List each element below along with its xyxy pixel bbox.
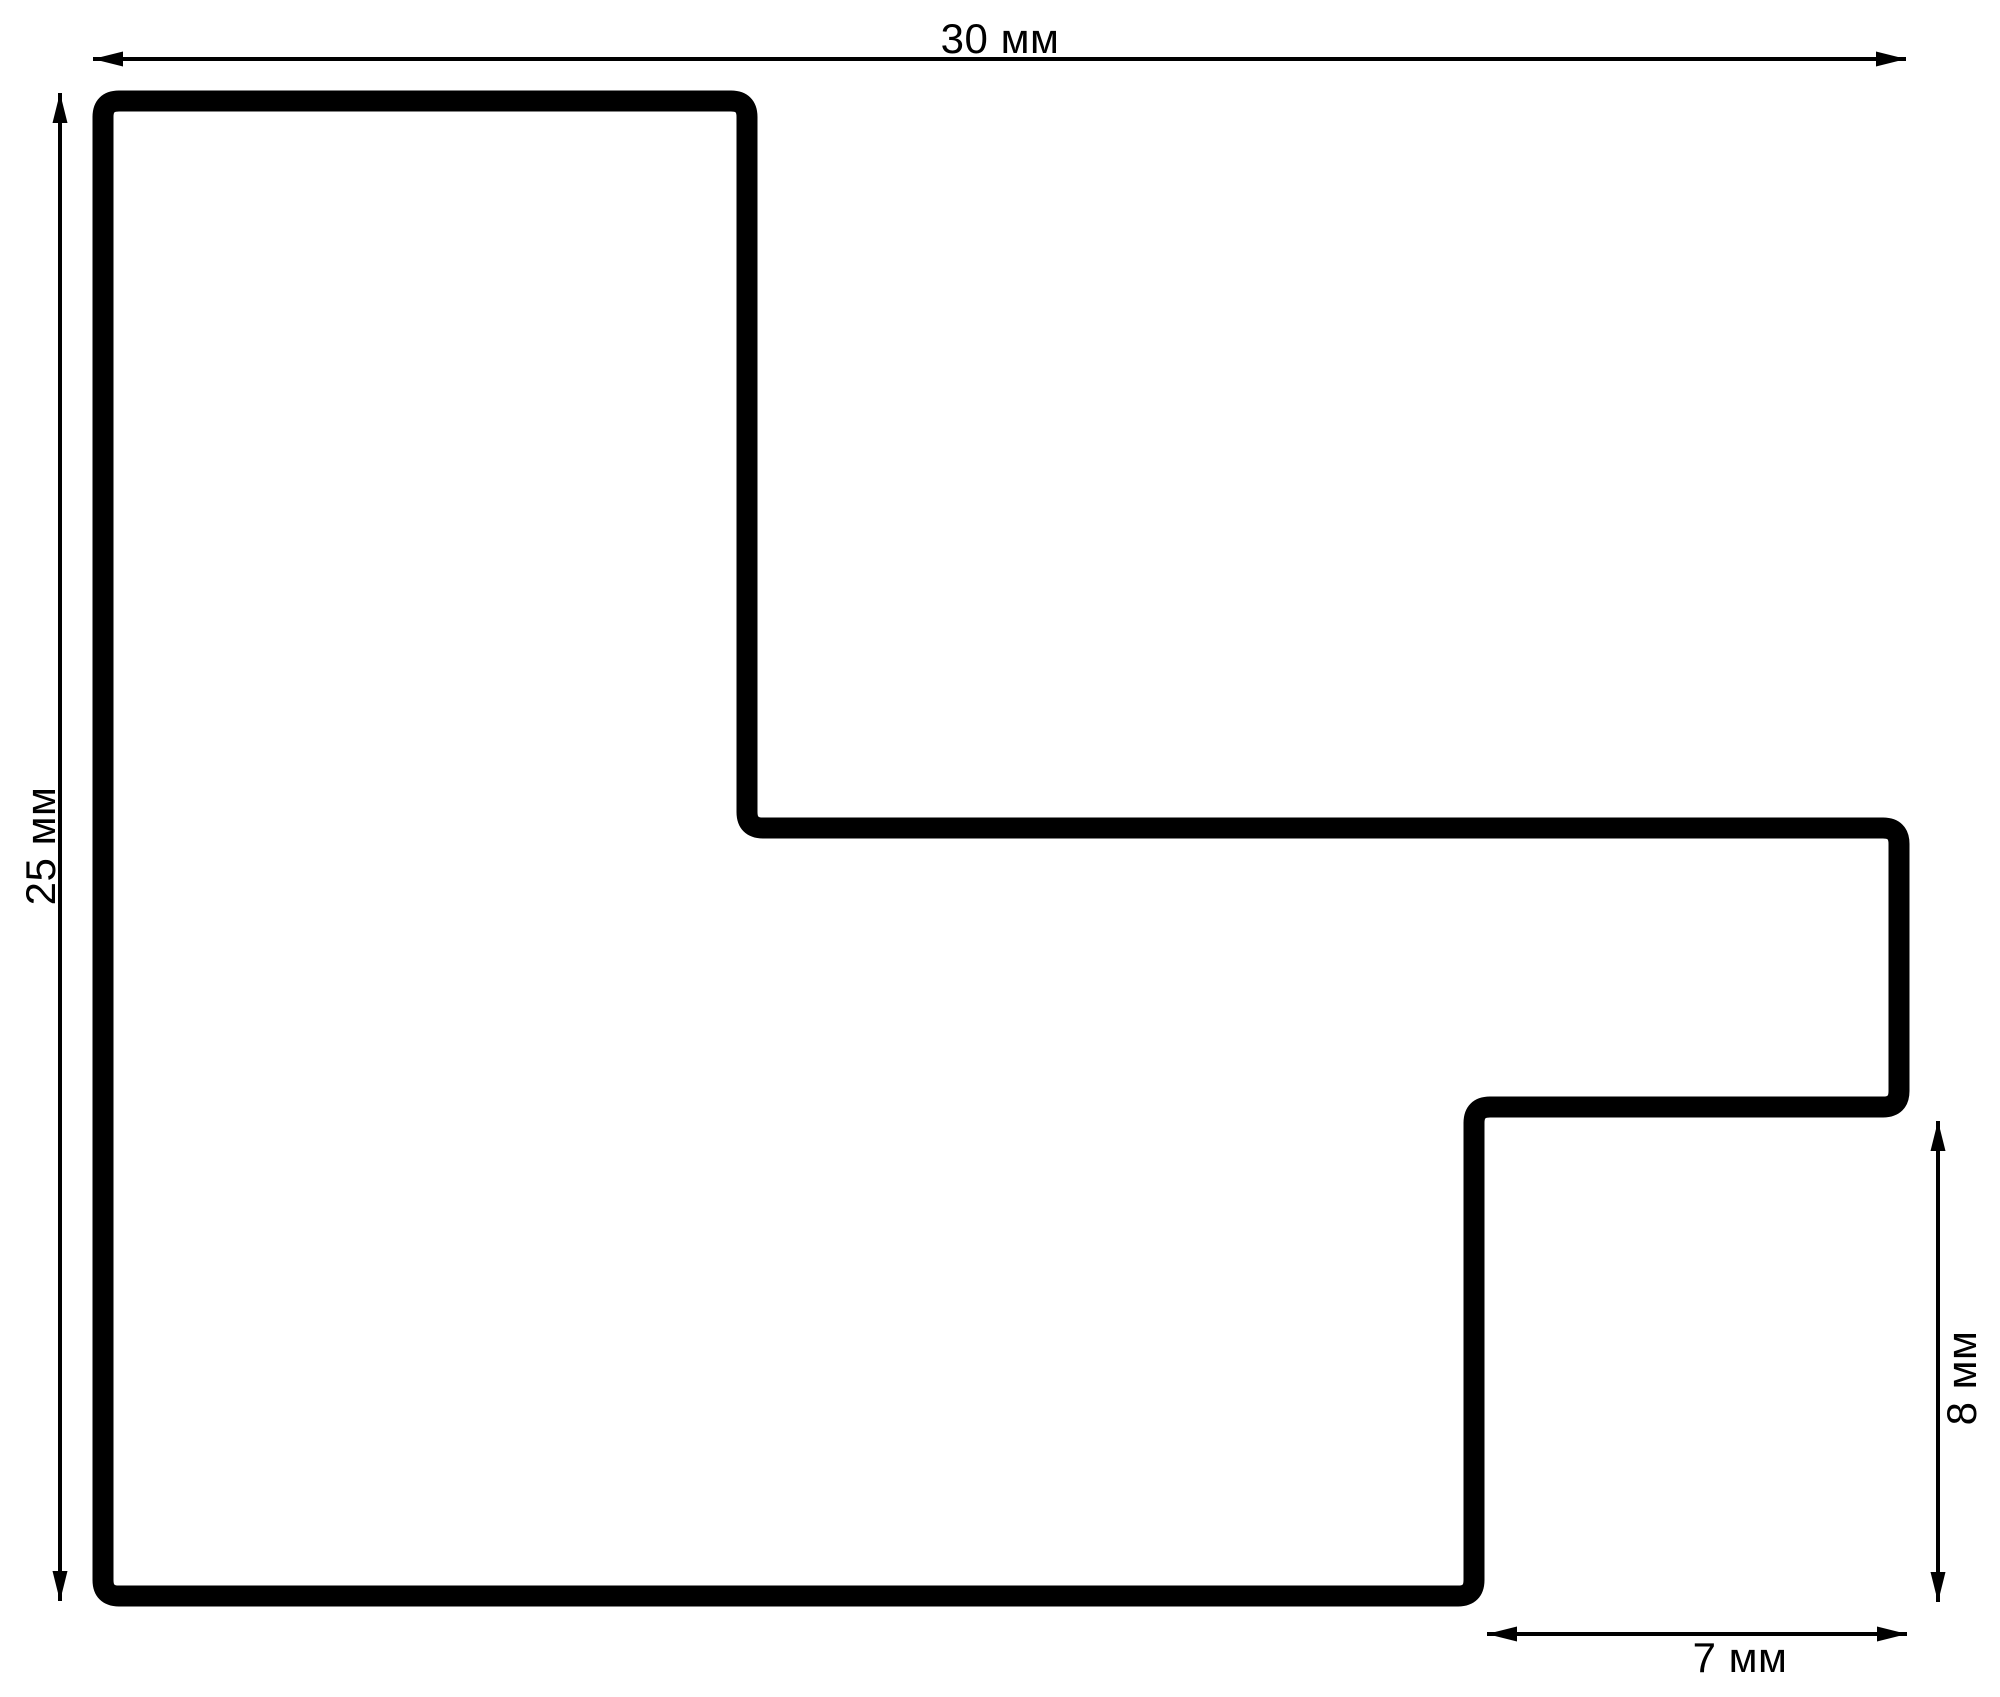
dimension-label-top-width: 30 мм [941,18,1060,60]
dimension-label-left-height: 25 мм [20,787,62,906]
profile-drawing-svg [0,0,2000,1697]
dimension-label-right-step-height: 8 мм [1941,1331,1983,1426]
dimension-label-bottom-step-width: 7 мм [1693,1637,1788,1679]
drawing-canvas: 30 мм 25 мм 8 мм 7 мм [0,0,2000,1697]
profile-outline [103,101,1899,1596]
